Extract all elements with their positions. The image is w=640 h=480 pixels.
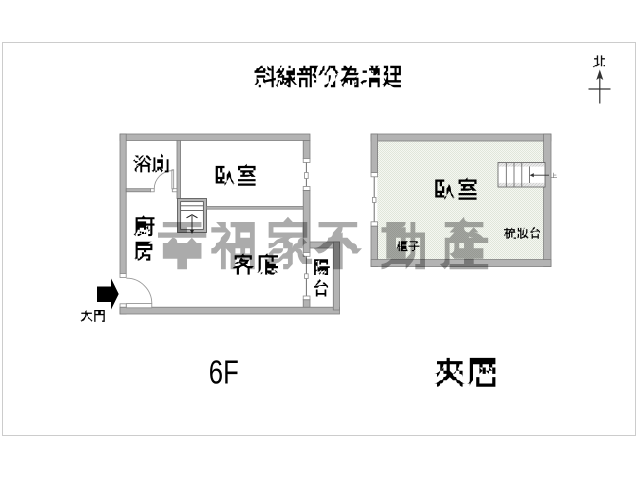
- svg-text:6F: 6F: [209, 355, 239, 392]
